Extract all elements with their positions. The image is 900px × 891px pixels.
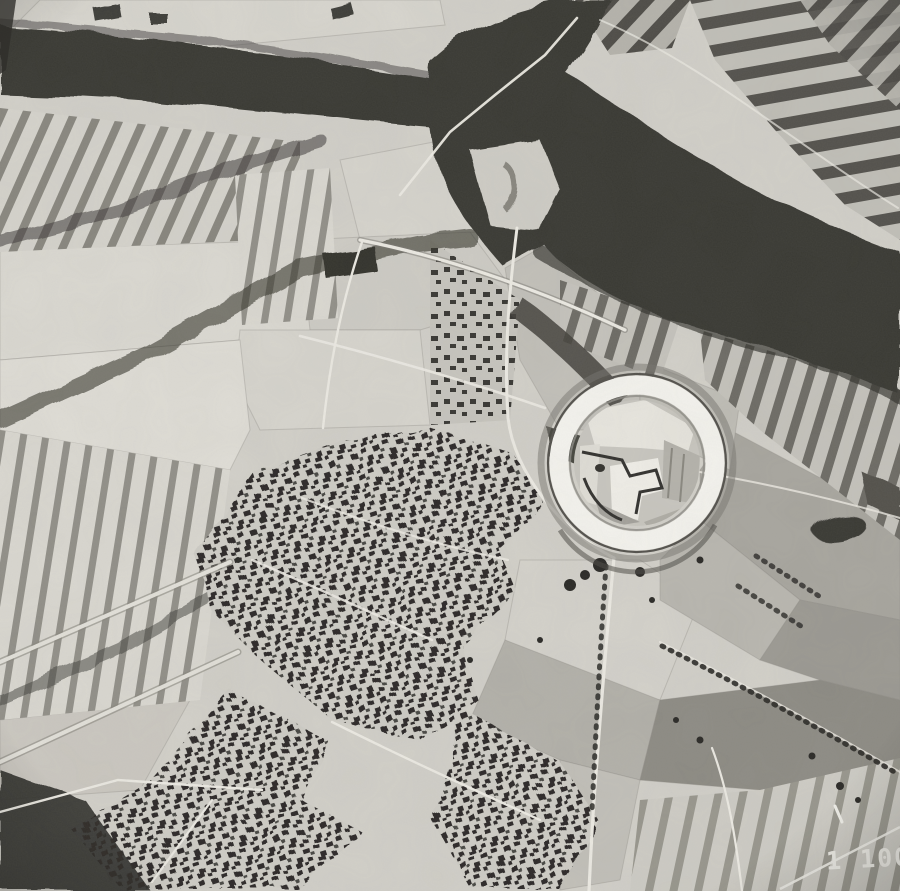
aerial-photo-viewport: 1 100 <box>0 0 900 891</box>
vignette <box>0 0 900 891</box>
aerial-photograph: 1 100 <box>0 0 900 891</box>
